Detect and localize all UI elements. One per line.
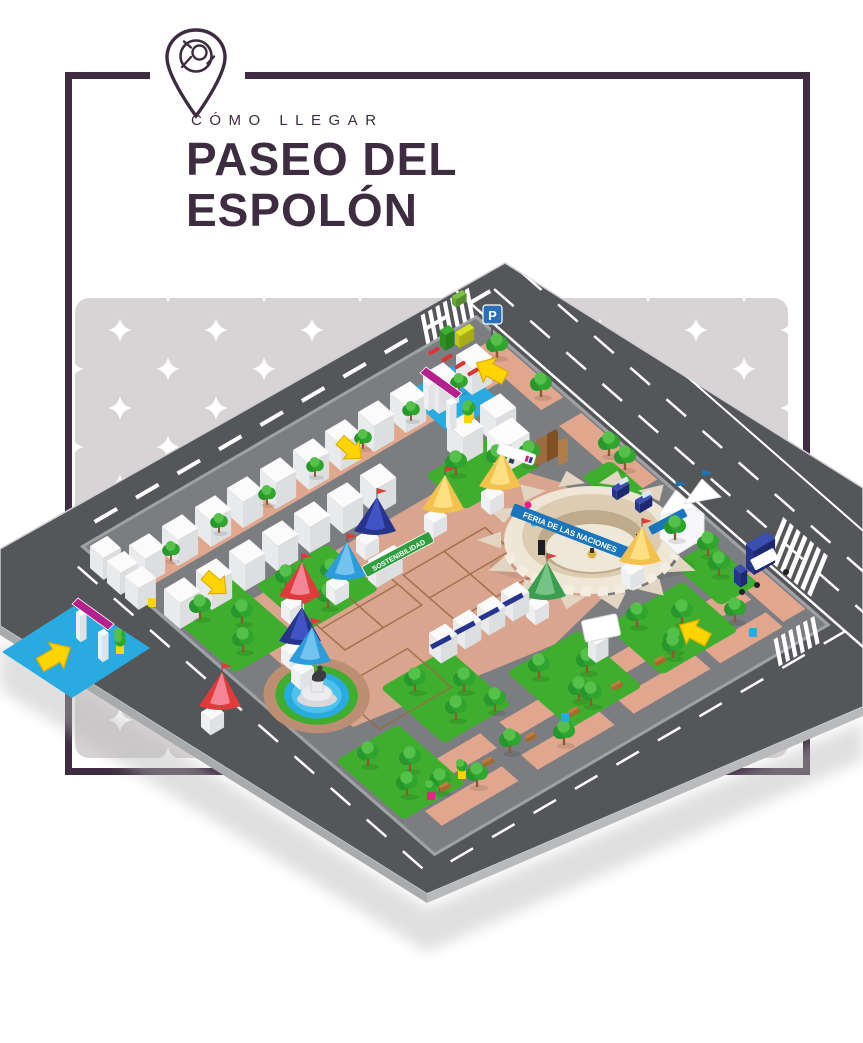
poster: CÓMO LLEGAR PASEO DEL ESPOLÓN	[0, 0, 863, 1043]
svg-text:P: P	[488, 308, 497, 323]
isometric-map: P	[0, 0, 863, 1043]
